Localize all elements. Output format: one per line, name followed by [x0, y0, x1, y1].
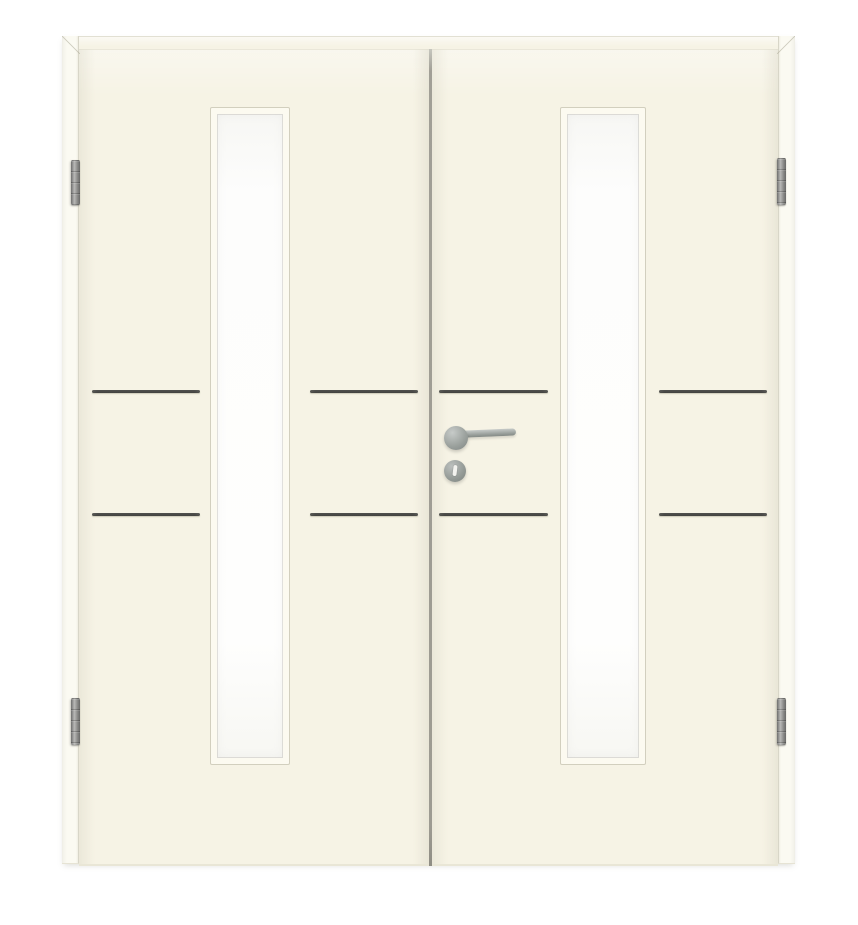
inlay-strip: [92, 390, 200, 393]
product-photo: Cream white double interior door with fr…: [0, 0, 858, 925]
hinge-top-left: [71, 160, 80, 205]
double-door: Cream white double interior door with fr…: [62, 36, 795, 864]
inlay-strip: [439, 390, 548, 393]
glass-pane: [567, 114, 639, 758]
glass-panel-right: [561, 108, 645, 764]
inlay-strip: [310, 513, 418, 516]
keyhole-icon: [452, 465, 457, 476]
glass-pane: [217, 114, 283, 758]
door-leaf-right: [432, 49, 779, 866]
keyhole-escutcheon: [444, 460, 466, 482]
inlay-strip: [92, 513, 200, 516]
frame-miter-top-left: [62, 36, 80, 54]
hinge-bottom-left: [71, 698, 80, 745]
frame-miter-top-right: [777, 36, 795, 54]
inlay-strip: [439, 513, 548, 516]
door-leaf-left: [79, 49, 429, 866]
hinge-bottom-right: [777, 698, 786, 745]
inlay-strip: [310, 390, 418, 393]
hinge-top-right: [777, 158, 786, 205]
glass-panel-left: [211, 108, 289, 764]
door-frame-top-rail: [62, 36, 795, 50]
inlay-strip: [659, 513, 767, 516]
inlay-strip: [659, 390, 767, 393]
door-handle-rosette: [444, 426, 468, 450]
